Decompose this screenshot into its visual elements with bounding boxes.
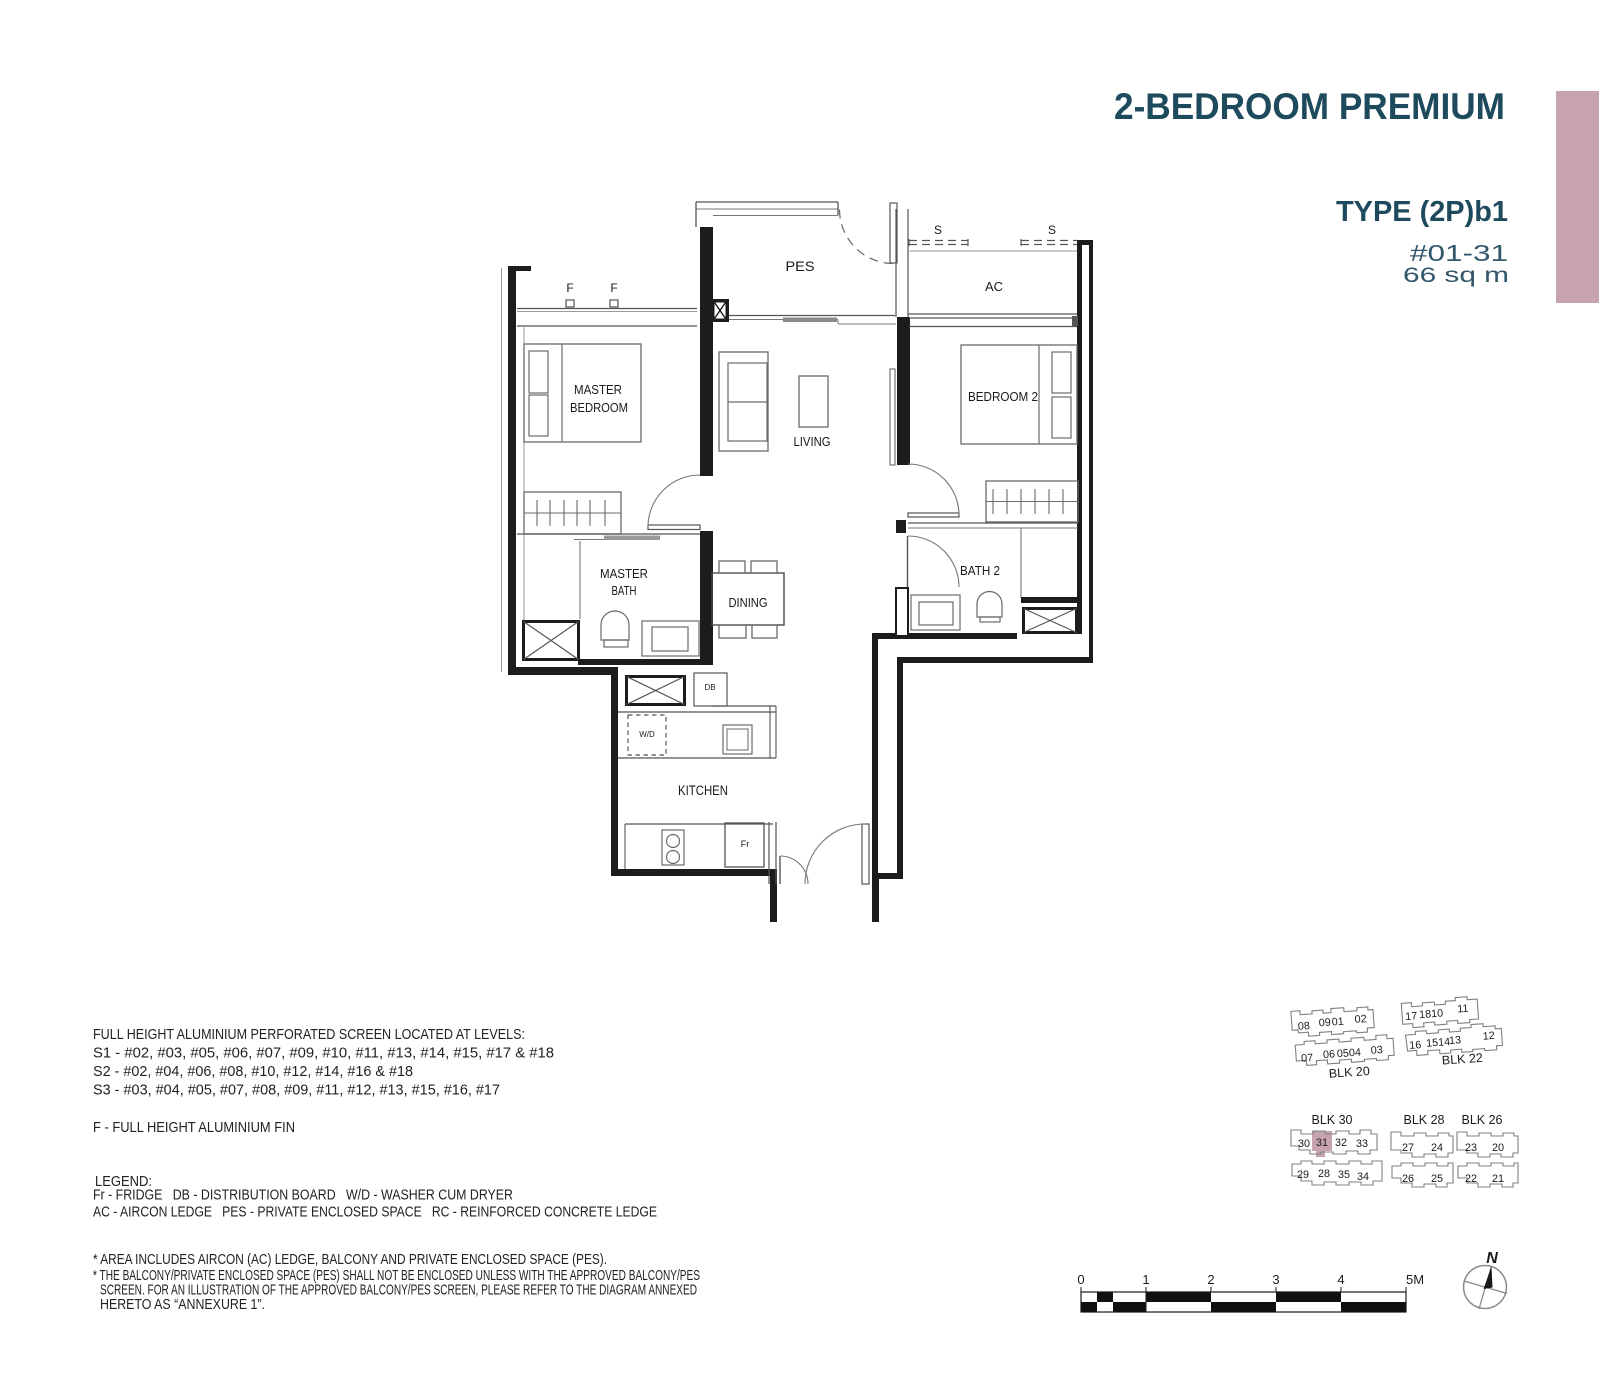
svg-text:08: 08	[1298, 1020, 1311, 1033]
svg-text:15: 15	[1426, 1037, 1439, 1050]
svg-text:30: 30	[1298, 1138, 1310, 1150]
svg-text:N: N	[1486, 1250, 1498, 1267]
svg-text:18: 18	[1419, 1008, 1432, 1021]
svg-text:0: 0	[1077, 1272, 1084, 1287]
svg-text:28: 28	[1318, 1168, 1330, 1180]
svg-text:MASTER: MASTER	[574, 382, 622, 397]
svg-text:13: 13	[1449, 1034, 1462, 1047]
svg-text:BATH: BATH	[612, 583, 637, 598]
svg-text:TYPE (2P)b1: TYPE (2P)b1	[1336, 196, 1508, 228]
svg-text:BLK 22: BLK 22	[1441, 1051, 1483, 1068]
svg-text:23: 23	[1465, 1142, 1477, 1154]
svg-text:03: 03	[1370, 1044, 1383, 1057]
svg-text:S3 - #03, #04, #05, #07, #08,: S3 - #03, #04, #05, #07, #08, #09, #11, …	[93, 1083, 500, 1099]
svg-text:22: 22	[1465, 1173, 1477, 1185]
svg-text:34: 34	[1357, 1171, 1369, 1183]
svg-text:2: 2	[1207, 1272, 1214, 1287]
svg-text:BLK 30: BLK 30	[1311, 1113, 1352, 1127]
svg-text:F - FULL HEIGHT ALUMINIUM FIN: F - FULL HEIGHT ALUMINIUM FIN	[93, 1120, 295, 1136]
svg-text:LIVING: LIVING	[794, 434, 831, 449]
svg-text:BLK 20: BLK 20	[1328, 1064, 1370, 1081]
svg-text:11: 11	[1457, 1003, 1469, 1016]
svg-text:4: 4	[1337, 1272, 1344, 1287]
svg-text:26: 26	[1402, 1173, 1414, 1185]
svg-text:AC: AC	[985, 279, 1003, 294]
svg-text:24: 24	[1431, 1142, 1443, 1154]
svg-text:31: 31	[1316, 1137, 1328, 1149]
svg-text:PES: PES	[786, 258, 815, 274]
svg-text:AC - AIRCON LEDGE PES - PRIV: AC - AIRCON LEDGE PES - PRIVATE ENCLOSED…	[93, 1205, 657, 1221]
svg-text:2-BEDROOM PREMIUM: 2-BEDROOM PREMIUM	[1114, 86, 1505, 127]
svg-text:29: 29	[1297, 1169, 1309, 1181]
svg-text:05: 05	[1337, 1047, 1350, 1060]
svg-text:S: S	[934, 223, 942, 237]
svg-text:FULL HEIGHT ALUMINIUM PERFORAT: FULL HEIGHT ALUMINIUM PERFORATED SCREEN …	[93, 1027, 525, 1043]
svg-text:F: F	[566, 281, 573, 295]
svg-text:06: 06	[1323, 1048, 1336, 1061]
svg-text:16: 16	[1409, 1039, 1422, 1052]
svg-text:25: 25	[1431, 1173, 1443, 1185]
svg-text:10: 10	[1431, 1007, 1444, 1020]
svg-text:BEDROOM 2: BEDROOM 2	[968, 389, 1038, 404]
svg-text:S1 - #02, #03, #05, #06, #07,: S1 - #02, #03, #05, #06, #07, #09, #10, …	[93, 1046, 554, 1062]
svg-text:17: 17	[1405, 1010, 1418, 1023]
svg-text:MASTER: MASTER	[600, 566, 648, 581]
svg-text:04: 04	[1349, 1047, 1362, 1060]
svg-text:Fr: Fr	[741, 839, 750, 849]
svg-text:33: 33	[1356, 1138, 1368, 1150]
svg-text:1: 1	[1142, 1272, 1149, 1287]
svg-text:S2 - #02, #04, #06, #08, #10,: S2 - #02, #04, #06, #08, #10, #12, #14, …	[93, 1064, 413, 1080]
svg-text:KITCHEN: KITCHEN	[678, 783, 728, 798]
svg-text:S: S	[1048, 223, 1056, 237]
svg-text:32: 32	[1335, 1137, 1347, 1149]
svg-text:5M: 5M	[1406, 1272, 1424, 1287]
svg-text:02: 02	[1354, 1013, 1367, 1026]
svg-text:BEDROOM: BEDROOM	[570, 400, 628, 415]
svg-text:3: 3	[1272, 1272, 1279, 1287]
svg-text:09: 09	[1318, 1017, 1331, 1030]
svg-text:F: F	[610, 281, 617, 295]
svg-text:01: 01	[1331, 1016, 1344, 1029]
svg-text:HERETO AS “ANNEXURE 1”.: HERETO AS “ANNEXURE 1”.	[100, 1297, 265, 1313]
svg-text:DINING: DINING	[729, 595, 768, 610]
svg-text:07: 07	[1301, 1052, 1314, 1065]
svg-text:27: 27	[1402, 1142, 1414, 1154]
svg-text:BATH 2: BATH 2	[960, 563, 1000, 578]
svg-text:35: 35	[1338, 1169, 1350, 1181]
svg-text:DB: DB	[704, 683, 715, 692]
svg-text:W/D: W/D	[639, 730, 655, 739]
svg-text:* AREA INCLUDES AIRCON (AC) LE: * AREA INCLUDES AIRCON (AC) LEDGE, BALCO…	[93, 1252, 607, 1268]
svg-text:21: 21	[1492, 1173, 1504, 1185]
svg-text:66 sq m: 66 sq m	[1403, 263, 1509, 287]
svg-text:20: 20	[1492, 1142, 1504, 1154]
svg-text:Fr - FRIDGE DB - DISTRIBUTIO: Fr - FRIDGE DB - DISTRIBUTION BOARD W/D …	[93, 1188, 513, 1204]
svg-text:BLK 28: BLK 28	[1403, 1113, 1444, 1127]
svg-text:BLK 26: BLK 26	[1461, 1113, 1502, 1127]
svg-text:12: 12	[1482, 1030, 1495, 1043]
